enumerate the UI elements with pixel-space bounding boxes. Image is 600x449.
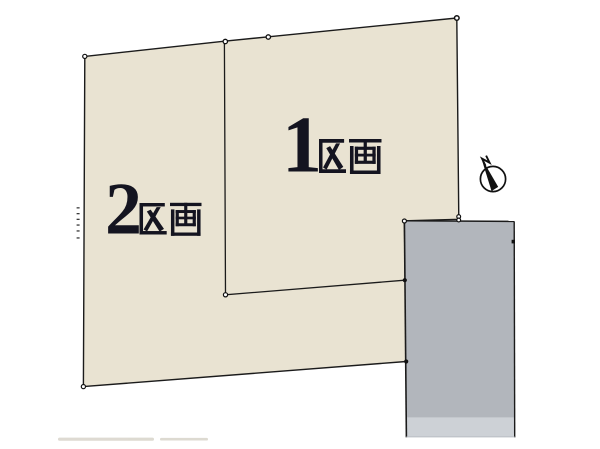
svg-text:1: 1	[282, 102, 322, 190]
svg-text:2: 2	[105, 169, 142, 251]
